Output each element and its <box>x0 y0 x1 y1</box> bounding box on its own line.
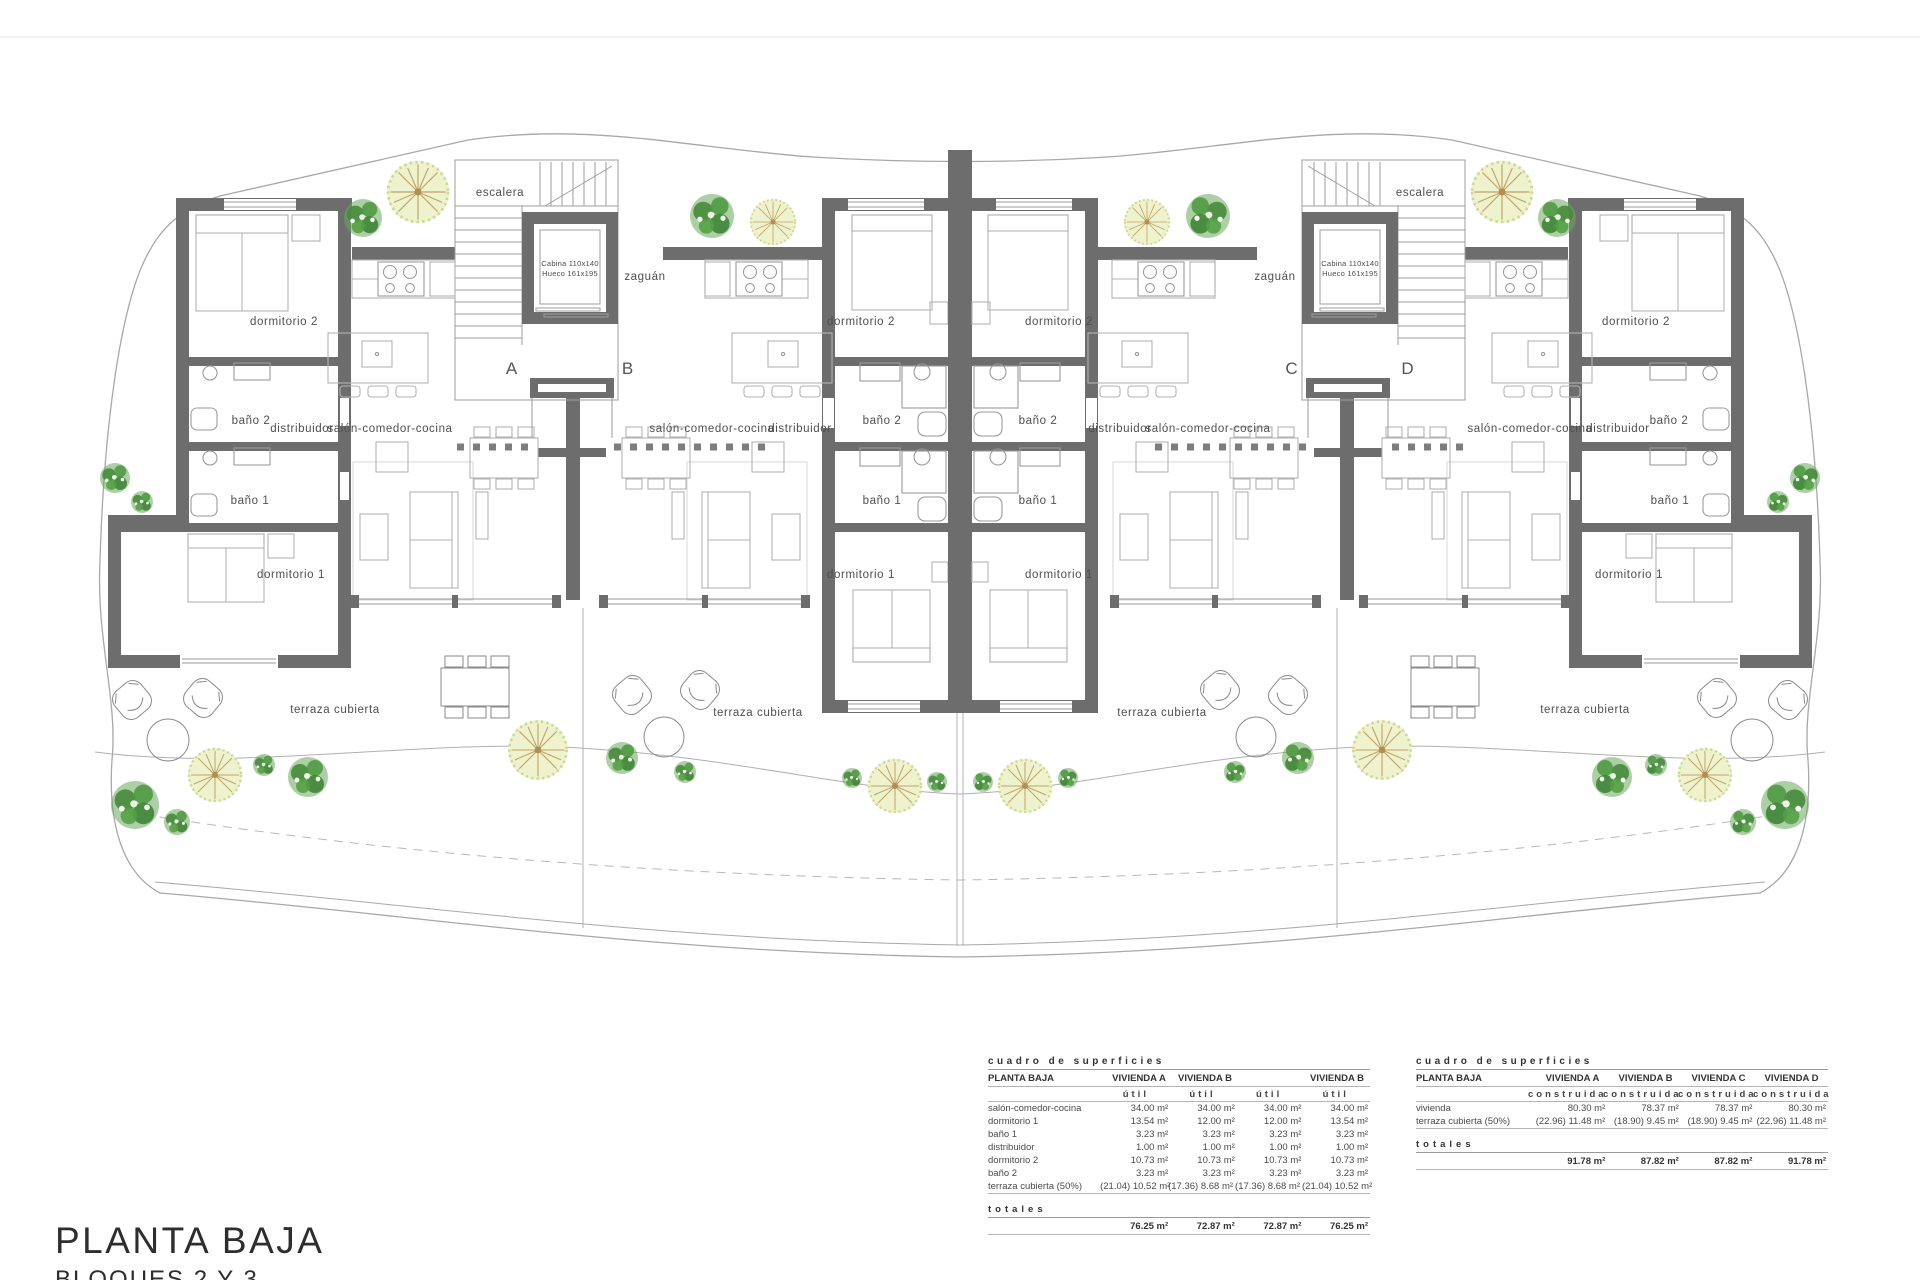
unit-letter-a: A <box>506 359 518 378</box>
table-row: terraza cubierta (50%) (21.04) 10.52 m² … <box>988 1180 1370 1194</box>
cell: 3.23 m² <box>1303 1168 1370 1179</box>
cell: 10.73 m² <box>1104 1155 1171 1166</box>
room-label-bano2-c: baño 2 <box>1019 415 1058 427</box>
table-title: cuadro de superficies <box>1416 1056 1828 1070</box>
room-label-salon-b: salón-comedor-cocina <box>649 423 774 435</box>
block-right-geometry <box>948 150 1820 945</box>
room-label-dormitorio2-d: dormitorio 2 <box>1602 316 1670 328</box>
table-header-cell: VIVIENDA A <box>1536 1073 1609 1084</box>
room-label-dormitorio1-b: dormitorio 1 <box>827 569 895 581</box>
cell: 78.37 m² <box>1607 1103 1681 1114</box>
room-label-dormitorio2-c: dormitorio 2 <box>1025 316 1093 328</box>
unit-letter-d: D <box>1401 359 1414 378</box>
table-row: terraza cubierta (50%) (22.96) 11.48 m² … <box>1416 1115 1828 1129</box>
row-label: vivienda <box>1416 1103 1534 1114</box>
cell: 3.23 m² <box>1170 1129 1237 1140</box>
total-cell: 76.25 m² <box>1303 1221 1370 1232</box>
cell: 3.23 m² <box>1170 1168 1237 1179</box>
cell: 10.73 m² <box>1170 1155 1237 1166</box>
room-label-distribuidor-a: distribuidor <box>270 423 333 435</box>
room-label-salon-c: salón-comedor-cocina <box>1145 423 1270 435</box>
table-row: salón-comedor-cocina 34.00 m² 34.00 m² 3… <box>988 1102 1370 1115</box>
cell: 34.00 m² <box>1104 1103 1171 1114</box>
room-label-distribuidor-d: distribuidor <box>1586 423 1649 435</box>
total-cell: 87.82 m² <box>1607 1156 1681 1167</box>
total-cell: 87.82 m² <box>1681 1156 1755 1167</box>
cell: (18.90) 9.45 m² <box>1681 1116 1755 1127</box>
cell: (17.36) 8.68 m² <box>1235 1181 1302 1192</box>
cell: 13.54 m² <box>1303 1116 1370 1127</box>
elevator-cab-label-left: Cabina 110x140 <box>541 259 599 268</box>
room-label-bano1-a: baño 1 <box>231 495 270 507</box>
room-label-bano1-c: baño 1 <box>1019 495 1058 507</box>
table-header-cell: PLANTA BAJA <box>1416 1073 1536 1084</box>
room-label-distribuidor-b: distribuidor <box>768 423 831 435</box>
table-header-cell: VIVIENDA D <box>1755 1073 1828 1084</box>
row-label: baño 1 <box>988 1129 1104 1140</box>
room-label-salon-a: salón-comedor-cocina <box>327 423 452 435</box>
room-label-dormitorio1-a: dormitorio 1 <box>257 569 325 581</box>
table-header-cell: VIVIENDA B <box>1304 1073 1370 1084</box>
table-row: vivienda 80.30 m² 78.37 m² 78.37 m² 80.3… <box>1416 1102 1828 1115</box>
table-subheader-cell: construida <box>1603 1089 1678 1100</box>
floor-plan-sheet: escalera escalera zaguán zaguán Cabina 1… <box>0 0 1920 1280</box>
table-subheader-cell: útil <box>1170 1089 1237 1100</box>
cell: 80.30 m² <box>1534 1103 1608 1114</box>
total-cell: 72.87 m² <box>1237 1221 1304 1232</box>
row-label: terraza cubierta (50%) <box>1416 1116 1534 1127</box>
cell: 34.00 m² <box>1170 1103 1237 1114</box>
table-subheader-cell: útil <box>1303 1089 1370 1100</box>
cell: 10.73 m² <box>1303 1155 1370 1166</box>
totals-row: 76.25 m² 72.87 m² 72.87 m² 76.25 m² <box>988 1218 1370 1235</box>
total-cell: 76.25 m² <box>1104 1221 1171 1232</box>
cell: 13.54 m² <box>1104 1116 1171 1127</box>
totals-row: 91.78 m² 87.82 m² 87.82 m² 91.78 m² <box>1416 1153 1828 1170</box>
room-label-bano1-b: baño 1 <box>863 495 902 507</box>
terrace-label-b: terraza cubierta <box>713 707 803 719</box>
plan-subtitle: BLOQUES 2 Y 3 <box>55 1266 324 1280</box>
cell: (21.04) 10.52 m² <box>1302 1181 1370 1192</box>
cell: 10.73 m² <box>1237 1155 1304 1166</box>
cell: (17.36) 8.68 m² <box>1168 1181 1235 1192</box>
cell: 1.00 m² <box>1303 1142 1370 1153</box>
table-subheader-cell: útil <box>1104 1089 1171 1100</box>
cell: 80.30 m² <box>1754 1103 1828 1114</box>
room-label-salon-d: salón-comedor-cocina <box>1467 423 1592 435</box>
cell: (22.96) 11.48 m² <box>1534 1116 1608 1127</box>
terrace-label-d: terraza cubierta <box>1540 704 1630 716</box>
cell: (22.96) 11.48 m² <box>1754 1116 1828 1127</box>
table-header-row: PLANTA BAJA VIVIENDA A VIVIENDA B VIVIEN… <box>988 1071 1370 1087</box>
room-label-dormitorio1-c: dormitorio 1 <box>1025 569 1093 581</box>
cell: 12.00 m² <box>1237 1116 1304 1127</box>
room-label-bano2-a: baño 2 <box>232 415 271 427</box>
cell: 78.37 m² <box>1681 1103 1755 1114</box>
plan-title: PLANTA BAJA <box>55 1220 324 1262</box>
row-label: salón-comedor-cocina <box>988 1103 1104 1114</box>
cell: 34.00 m² <box>1237 1103 1304 1114</box>
table-header-cell: VIVIENDA A <box>1106 1073 1172 1084</box>
surface-table-construida: cuadro de superficies PLANTA BAJA VIVIEN… <box>1416 1056 1828 1170</box>
row-label: distribuidor <box>988 1142 1104 1153</box>
surface-table-util: cuadro de superficies PLANTA BAJA VIVIEN… <box>988 1056 1370 1235</box>
room-label-dormitorio2-a: dormitorio 2 <box>250 316 318 328</box>
row-label: baño 2 <box>988 1168 1104 1179</box>
row-label: dormitorio 1 <box>988 1116 1104 1127</box>
cell: 34.00 m² <box>1303 1103 1370 1114</box>
row-label: dormitorio 2 <box>988 1155 1104 1166</box>
table-subheader-cell: construida <box>1528 1089 1603 1100</box>
terrace-label-c: terraza cubierta <box>1117 707 1207 719</box>
totals-label: totales <box>988 1204 1370 1218</box>
cell: 3.23 m² <box>1104 1129 1171 1140</box>
total-cell: 91.78 m² <box>1534 1156 1608 1167</box>
total-cell: 91.78 m² <box>1754 1156 1828 1167</box>
room-label-bano2-b: baño 2 <box>863 415 902 427</box>
table-row: dormitorio 2 10.73 m² 10.73 m² 10.73 m² … <box>988 1154 1370 1167</box>
hall-label-left: zaguán <box>624 271 665 283</box>
unit-letter-c: C <box>1285 359 1298 378</box>
cell: 3.23 m² <box>1237 1168 1304 1179</box>
table-subheader-cell: construida <box>1678 1089 1753 1100</box>
cell: (18.90) 9.45 m² <box>1607 1116 1681 1127</box>
table-row: dormitorio 1 13.54 m² 12.00 m² 12.00 m² … <box>988 1115 1370 1128</box>
table-row: baño 2 3.23 m² 3.23 m² 3.23 m² 3.23 m² <box>988 1167 1370 1180</box>
room-label-bano1-d: baño 1 <box>1651 495 1690 507</box>
title-block: PLANTA BAJA BLOQUES 2 Y 3 <box>55 1220 324 1280</box>
cell: 1.00 m² <box>1104 1142 1171 1153</box>
table-subheader-row: útil útil útil útil <box>988 1087 1370 1102</box>
unit-letter-b: B <box>622 359 634 378</box>
room-label-dormitorio2-b: dormitorio 2 <box>827 316 895 328</box>
hall-label-right: zaguán <box>1254 271 1295 283</box>
table-row: distribuidor 1.00 m² 1.00 m² 1.00 m² 1.0… <box>988 1141 1370 1154</box>
cell: 3.23 m² <box>1303 1129 1370 1140</box>
table-subheader-row: construida construida construida constru… <box>1416 1087 1828 1102</box>
room-label-bano2-d: baño 2 <box>1650 415 1689 427</box>
cell: (21.04) 10.52 m² <box>1100 1181 1168 1192</box>
cell: 1.00 m² <box>1170 1142 1237 1153</box>
elevator-shaft-label-right: Hueco 161x195 <box>1322 269 1378 278</box>
cell: 3.23 m² <box>1237 1129 1304 1140</box>
room-label-dormitorio1-d: dormitorio 1 <box>1595 569 1663 581</box>
cell: 12.00 m² <box>1170 1116 1237 1127</box>
table-subheader-cell: útil <box>1237 1089 1304 1100</box>
elevator-cab-label-right: Cabina 110x140 <box>1321 259 1379 268</box>
cell: 3.23 m² <box>1104 1168 1171 1179</box>
table-title: cuadro de superficies <box>988 1056 1370 1070</box>
elevator-shaft-label-left: Hueco 161x195 <box>542 269 598 278</box>
table-subheader-cell: construida <box>1753 1089 1828 1100</box>
table-row: baño 1 3.23 m² 3.23 m² 3.23 m² 3.23 m² <box>988 1128 1370 1141</box>
terrace-label-a: terraza cubierta <box>290 704 380 716</box>
stair-label-right: escalera <box>1396 187 1444 199</box>
table-header-cell: VIVIENDA B <box>1172 1073 1238 1084</box>
table-header-cell: VIVIENDA C <box>1682 1073 1755 1084</box>
room-label-distribuidor-c: distribuidor <box>1088 423 1151 435</box>
table-header-row: PLANTA BAJA VIVIENDA A VIVIENDA B VIVIEN… <box>1416 1071 1828 1087</box>
cell: 1.00 m² <box>1237 1142 1304 1153</box>
table-header-cell: PLANTA BAJA <box>988 1073 1106 1084</box>
table-header-cell: VIVIENDA B <box>1609 1073 1682 1084</box>
stair-label-left: escalera <box>476 187 524 199</box>
row-label: terraza cubierta (50%) <box>988 1181 1100 1192</box>
totals-label: totales <box>1416 1139 1828 1153</box>
total-cell: 72.87 m² <box>1170 1221 1237 1232</box>
